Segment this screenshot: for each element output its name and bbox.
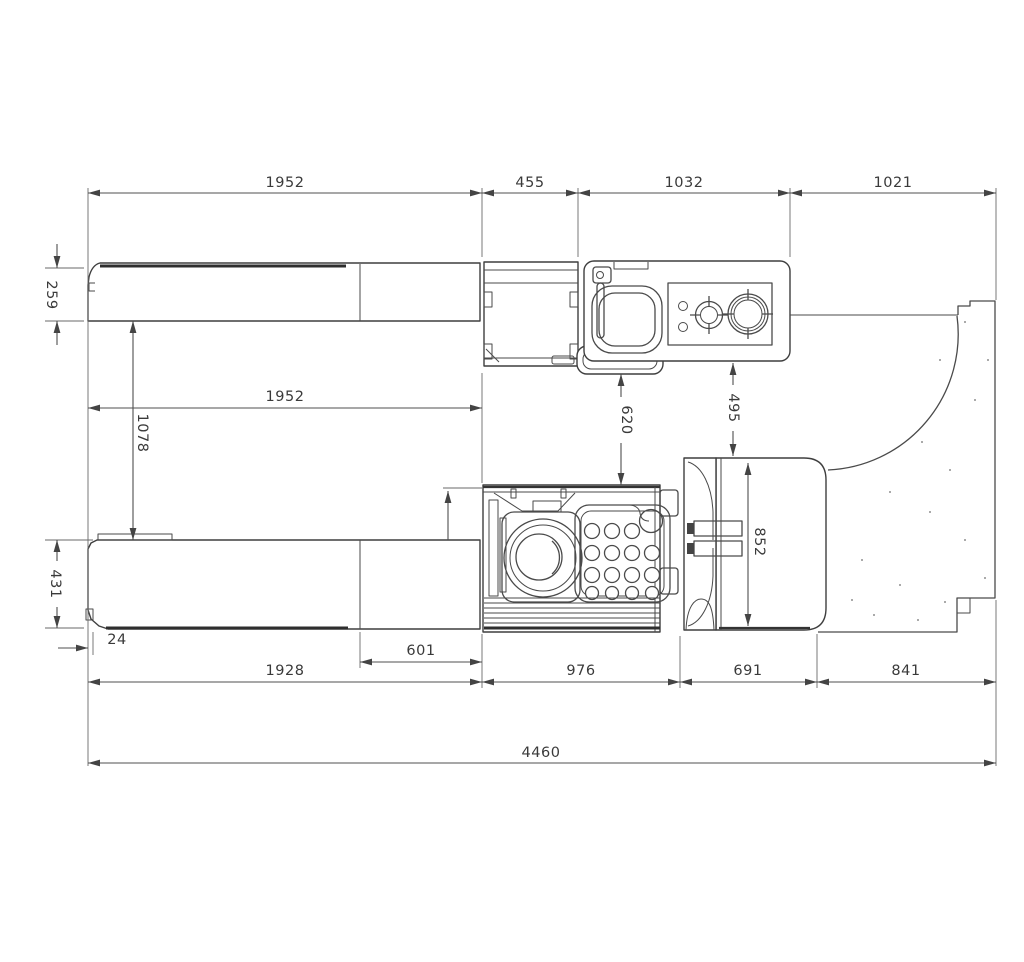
drawing-canvas: 1952 455 1032 1021 259 1078 431 24 1952 … — [0, 0, 1024, 962]
top-fork-arm-outline — [88, 263, 480, 321]
dim-label-1021: 1021 — [874, 175, 913, 191]
head-unit — [577, 261, 958, 374]
dim-label-841: 841 — [891, 663, 920, 679]
dim-label-852: 852 — [751, 527, 767, 556]
chassis-body — [818, 301, 995, 632]
dim-label-1078: 1078 — [134, 414, 150, 453]
dim-label-259: 259 — [43, 280, 59, 309]
chassis-outline — [818, 301, 995, 632]
dim-label-495: 495 — [725, 393, 741, 422]
technical-drawing: 1952 455 1032 1021 259 1078 431 24 1952 … — [0, 0, 1024, 962]
bottom-fork-arm-pad — [98, 534, 172, 540]
dim-label-1032: 1032 — [665, 175, 704, 191]
dim-bottom-group: 601 1928 976 691 841 4460 — [88, 643, 996, 763]
battery-box — [484, 262, 578, 366]
dim-label-431: 431 — [47, 569, 63, 598]
top-fork-arm — [88, 263, 480, 321]
dim-top-chain: 1952 455 1032 1021 — [88, 175, 996, 193]
dim-label-691: 691 — [733, 663, 762, 679]
battery-box-outline — [484, 262, 578, 366]
tread-stripes — [484, 598, 660, 628]
dim-label-455: 455 — [515, 175, 544, 191]
dim-label-1952-mid: 1952 — [266, 389, 305, 405]
dim-label-1928: 1928 — [266, 663, 305, 679]
chassis-curve — [828, 316, 958, 470]
dim-label-1952-top: 1952 — [266, 175, 305, 191]
lift-frame — [483, 485, 678, 632]
dim-label-4460: 4460 — [522, 745, 561, 761]
coupling-plug-cap — [687, 543, 694, 554]
dim-label-976: 976 — [566, 663, 595, 679]
dim-label-24: 24 — [107, 632, 126, 648]
dim-label-601: 601 — [406, 643, 435, 659]
frame-clip — [660, 490, 678, 516]
bottom-fork-arm — [86, 534, 480, 629]
drive-box — [716, 458, 826, 630]
chassis-step — [957, 598, 970, 613]
drive-box-outline — [716, 458, 826, 630]
dim-label-620: 620 — [618, 405, 634, 434]
chassis-stipple — [851, 321, 989, 621]
coupling-plug-cap — [687, 523, 694, 534]
bottom-fork-arm-outline — [88, 540, 480, 629]
